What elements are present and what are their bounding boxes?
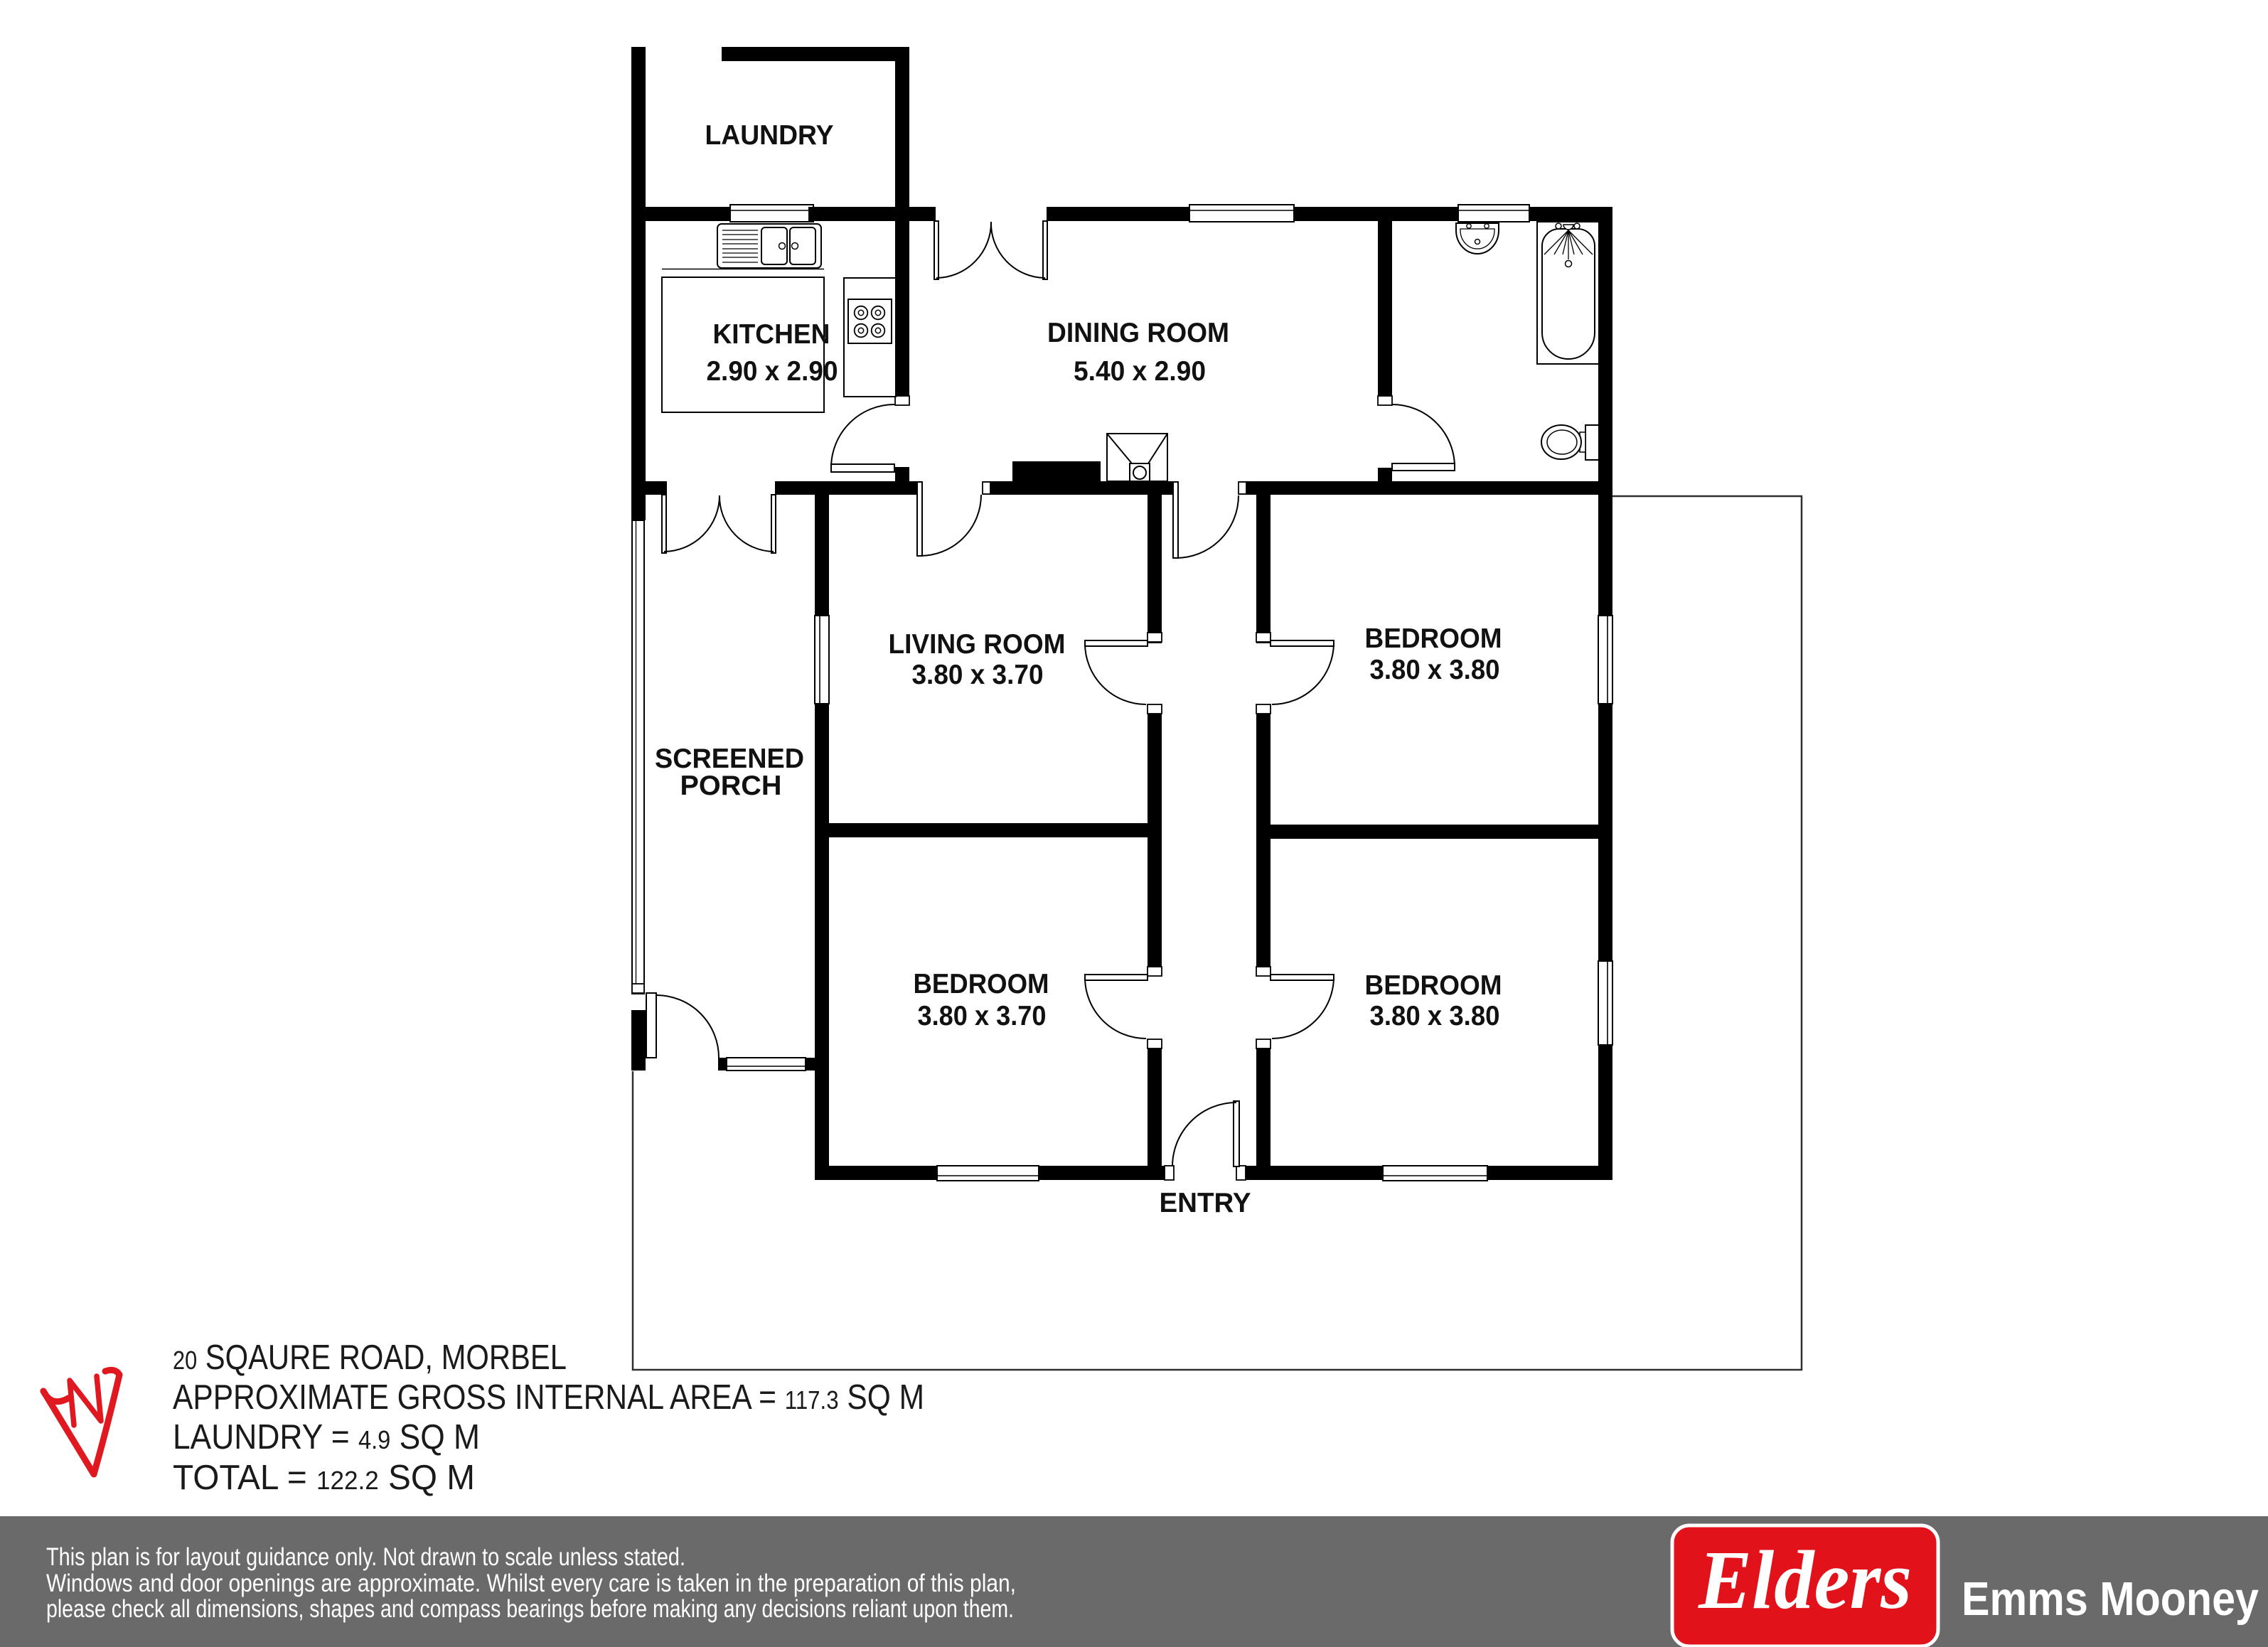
svg-text:Elders: Elders (1698, 1533, 1912, 1626)
svg-text:KITCHEN: KITCHEN (713, 319, 830, 350)
svg-text:SCREENED: SCREENED (655, 744, 804, 774)
svg-text:3.80 x 3.70: 3.80 x 3.70 (918, 1001, 1047, 1031)
svg-text:LAUNDRY: LAUNDRY (705, 120, 834, 151)
svg-text:DINING ROOM: DINING ROOM (1047, 318, 1229, 348)
svg-text:3.80 x 3.80: 3.80 x 3.80 (1370, 1001, 1500, 1031)
svg-text:LAUNDRY = 4.9 SQ M: LAUNDRY = 4.9 SQ M (173, 1418, 480, 1456)
svg-text:PORCH: PORCH (680, 771, 782, 801)
svg-text:This plan is for layout guidan: This plan is for layout guidance only. N… (46, 1543, 685, 1571)
svg-text:BEDROOM: BEDROOM (1365, 623, 1502, 654)
svg-text:LIVING ROOM: LIVING ROOM (889, 629, 1066, 660)
svg-text:BEDROOM: BEDROOM (914, 969, 1049, 999)
svg-text:Emms Mooney: Emms Mooney (1962, 1572, 2259, 1626)
svg-text:please check all dimensions, s: please check all dimensions, shapes and … (46, 1595, 1014, 1623)
svg-text:5.40 x 2.90: 5.40 x 2.90 (1074, 356, 1206, 387)
svg-text:BEDROOM: BEDROOM (1365, 970, 1502, 1001)
svg-text:3.80 x 3.70: 3.80 x 3.70 (912, 660, 1044, 690)
svg-text:20 SQAURE ROAD, MORBEL: 20 SQAURE ROAD, MORBEL (173, 1338, 567, 1377)
svg-text:2.90 x 2.90: 2.90 x 2.90 (707, 356, 838, 387)
svg-text:Windows and door openings are: Windows and door openings are approximat… (46, 1570, 1016, 1597)
svg-text:ENTRY: ENTRY (1160, 1188, 1251, 1218)
svg-text:3.80 x 3.80: 3.80 x 3.80 (1370, 655, 1500, 685)
